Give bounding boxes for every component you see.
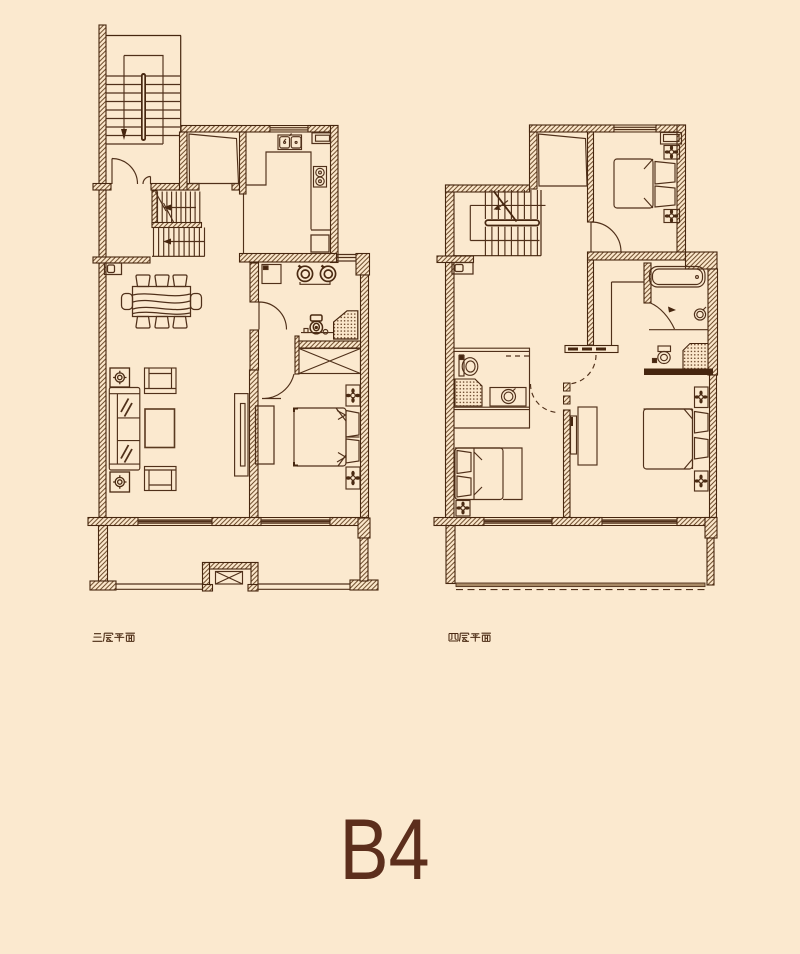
svg-text:B4: B4 — [340, 802, 430, 898]
